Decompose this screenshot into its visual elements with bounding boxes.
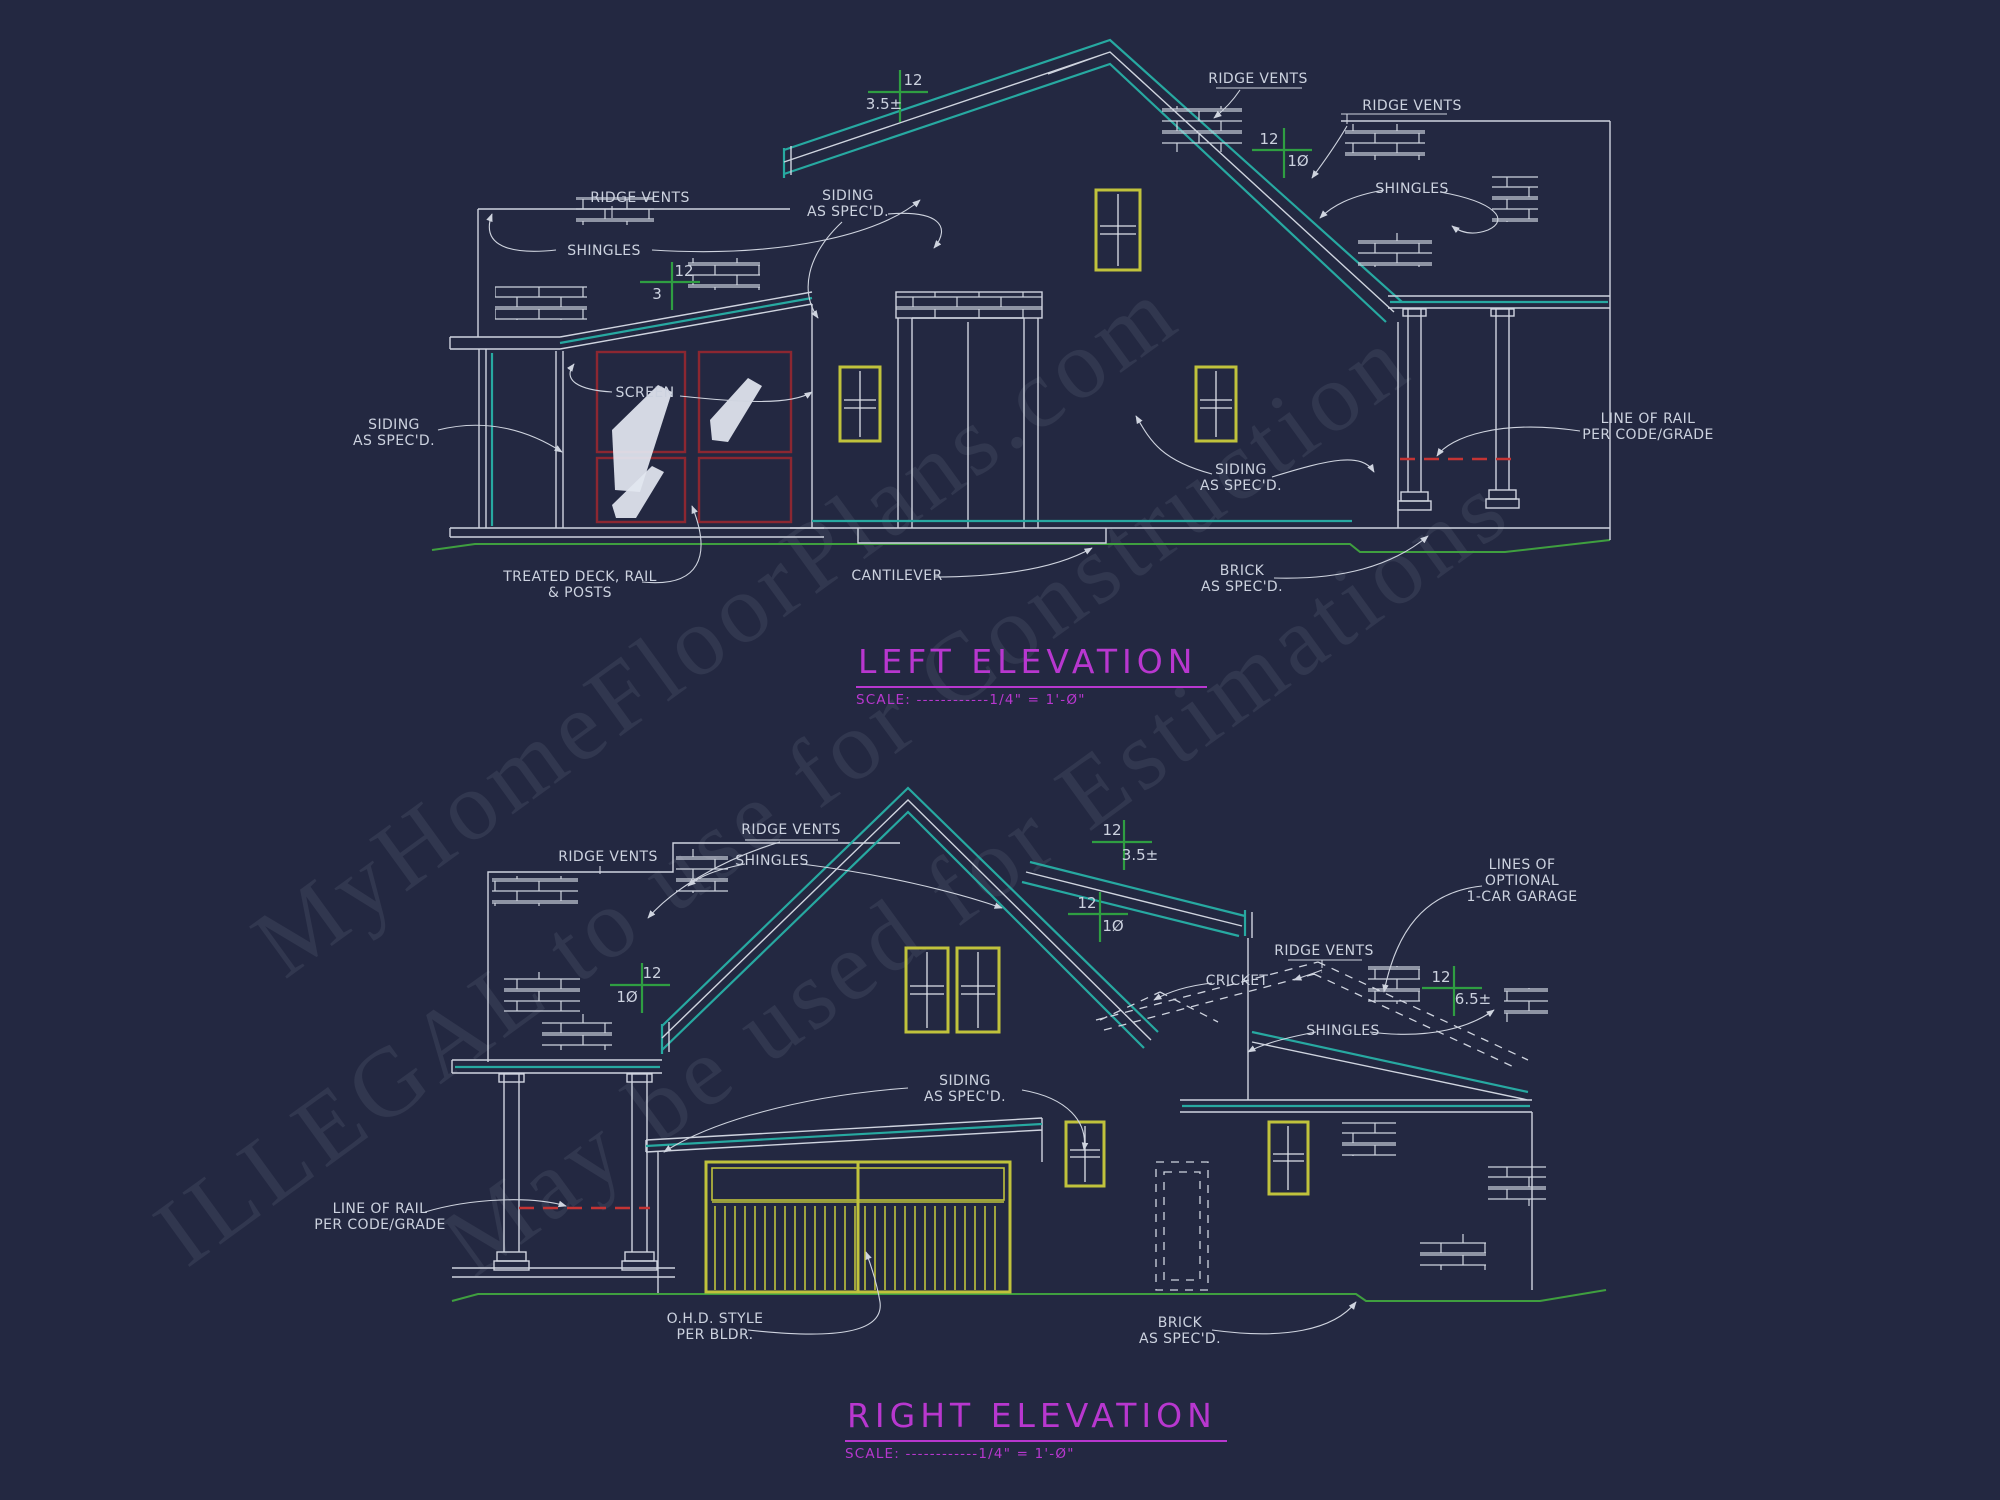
slope-right-rise: 12 [1259,130,1278,148]
label-line-of-rail-right: LINE OF RAIL PER CODE/GRADE [1582,412,1713,444]
right-elevation-title: RIGHT ELEVATION [845,1396,1227,1442]
slope-main-run: 3.5± [866,95,902,113]
left-elevation-title-block: LEFT ELEVATION SCALE: ------------1/4" =… [856,642,1207,708]
label-siding-left: SIDING AS SPEC'D. [353,418,435,450]
label-cricket: CRICKET [1206,974,1269,990]
label-ridge-vents-left-2: RIDGE VENTS [558,850,658,866]
label-shingles-mid: SHINGLES [735,854,809,870]
blueprint-sheet: MyHomeFloorPlans.com ILLEGAL to use for … [0,0,2000,1500]
slope-shed-run: 3.5± [1122,846,1158,864]
label-ohd-style: O.H.D. STYLE PER BLDR. [667,1312,764,1344]
label-treated-deck: TREATED DECK, RAIL & POSTS [503,570,657,602]
slope-wing-rise: 12 [1431,968,1450,986]
label-screen: SCREEN [616,386,675,402]
left-elevation-scale: SCALE: ------------1/4" = 1'-Ø" [856,692,1207,708]
slope-right-run: 1Ø [1287,152,1308,170]
slope-porch-rise: 12 [674,262,693,280]
label-ridge-vents-mid: RIDGE VENTS [741,823,841,839]
right-elevation-scale: SCALE: ------------1/4" = 1'-Ø" [845,1446,1227,1462]
left-elevation-drawing [432,40,1610,583]
right-elevation-title-block: RIGHT ELEVATION SCALE: ------------1/4" … [845,1396,1227,1462]
slope-main-rise: 12 [903,71,922,89]
left-elevation-title: LEFT ELEVATION [856,642,1207,688]
slope-wing-run: 6.5± [1455,990,1491,1008]
slope-main-right-run: 1Ø [1102,917,1123,935]
slope-main-right-rise: 12 [1077,894,1096,912]
label-lines-of-optional: LINES OF OPTIONAL 1-CAR GARAGE [1467,858,1578,906]
label-cantilever: CANTILEVER [851,569,942,585]
label-shingles-right-2: SHINGLES [1306,1024,1380,1040]
label-ridge-vents-left: RIDGE VENTS [590,191,690,207]
slope-porch-run: 3 [652,285,662,303]
label-ridge-vents-right-2: RIDGE VENTS [1274,944,1374,960]
label-shingles-left: SHINGLES [567,244,641,260]
label-ridge-vents-top-right: RIDGE VENTS [1208,72,1308,88]
label-siding-gable: SIDING AS SPEC'D. [807,189,889,221]
label-siding-mid: SIDING AS SPEC'D. [924,1074,1006,1106]
label-siding-right: SIDING AS SPEC'D. [1200,463,1282,495]
slope-main-left-rise: 12 [642,964,661,982]
slope-main-left-run: 1Ø [616,988,637,1006]
label-shingles-right: SHINGLES [1375,182,1449,198]
label-brick-left-elev: BRICK AS SPEC'D. [1201,564,1283,596]
slope-shed-rise: 12 [1102,821,1121,839]
right-elevation-drawing [425,788,1606,1334]
label-line-of-rail-left: LINE OF RAIL PER CODE/GRADE [314,1202,445,1234]
label-ridge-vents-right: RIDGE VENTS [1362,99,1462,115]
label-brick-right-elev: BRICK AS SPEC'D. [1139,1316,1221,1348]
blueprint-linework [0,0,2000,1500]
